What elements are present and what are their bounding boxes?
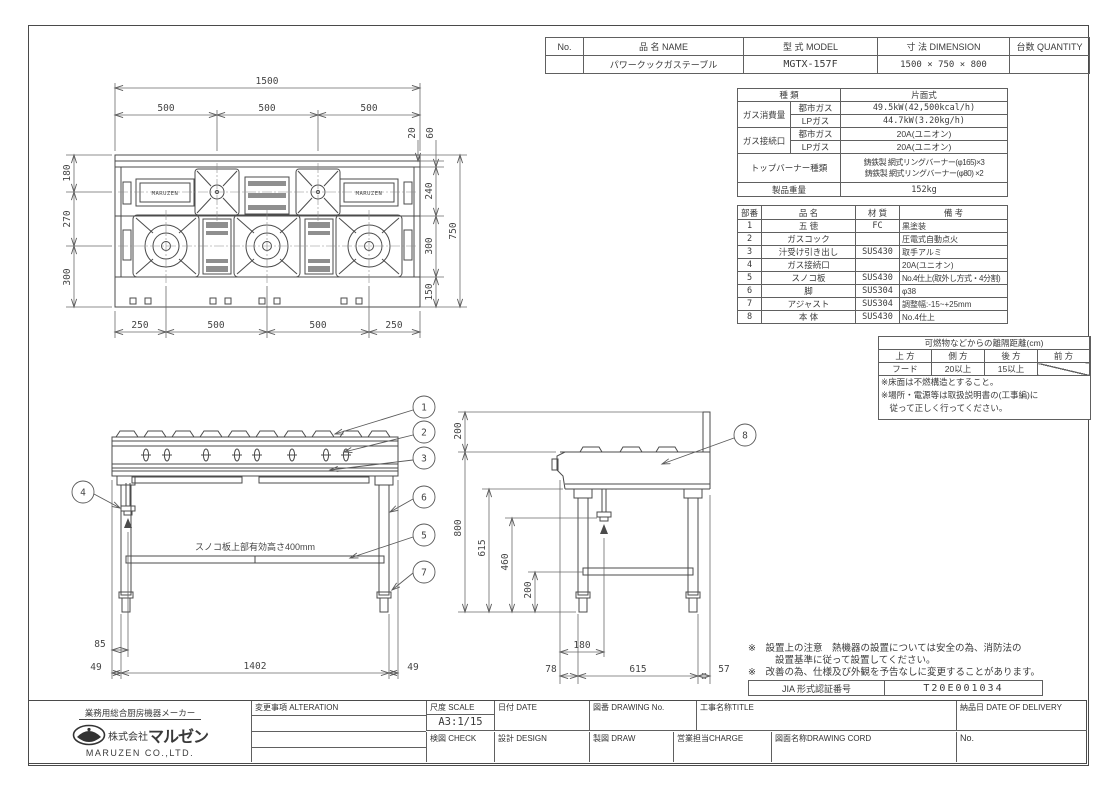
parts-cell: 圧電式自動点火 bbox=[900, 233, 1008, 246]
product-model: MGTX-157F bbox=[744, 56, 878, 74]
product-name: パワークックガステーブル bbox=[584, 56, 744, 74]
parts-row: 7 アジャスト SUS304 調整幅:-15~+25mm bbox=[738, 298, 1008, 311]
clearance-table: 可燃物などからの離隔距離(cm) 上 方 側 方 後 方 前 方 フード 20以… bbox=[878, 336, 1090, 376]
scale-value: A3:1/15 bbox=[427, 716, 494, 728]
spec-connection-city: 20A(ユニオン) bbox=[841, 128, 1008, 141]
scale-cell: 尺度 SCALE A3:1/15 bbox=[426, 701, 494, 731]
header-table: No. 品 名 NAME 型 式 MODEL 寸 法 DIMENSION 台数 … bbox=[545, 37, 1090, 74]
spec-weight-value: 152kg bbox=[841, 183, 1008, 197]
clearance-note-3: 従って正しく行ってください。 bbox=[879, 402, 1090, 415]
parts-cell bbox=[856, 259, 900, 272]
clearance-col-front: 前 方 bbox=[1038, 350, 1090, 363]
parts-cell: 1 bbox=[738, 220, 762, 233]
draw-cell: 製図 DRAW bbox=[589, 732, 673, 762]
spec-citygas-label: 都市ガス bbox=[791, 102, 841, 115]
parts-cell: 2 bbox=[738, 233, 762, 246]
no-label: No. bbox=[957, 732, 1087, 743]
parts-row: 8 本 体 SUS430 No.4仕上 bbox=[738, 311, 1008, 324]
charge-cell: 営業担当CHARGE bbox=[673, 732, 771, 762]
spec-citygas-label2: 都市ガス bbox=[791, 128, 841, 141]
parts-cell: アジャスト bbox=[762, 298, 856, 311]
parts-cell: 7 bbox=[738, 298, 762, 311]
parts-row: 2 ガスコック 圧電式自動点火 bbox=[738, 233, 1008, 246]
project-title-label: 工事名称TITLE bbox=[697, 701, 956, 713]
parts-col-name: 品 名 bbox=[762, 206, 856, 220]
parts-cell: SUS304 bbox=[856, 298, 900, 311]
header-col-dimension: 寸 法 DIMENSION bbox=[878, 38, 1010, 56]
parts-col-no: 部番 bbox=[738, 206, 762, 220]
parts-cell: 調整幅:-15~+25mm bbox=[900, 298, 1008, 311]
footnote-line-1b: 設置基準に従って設置してください。 bbox=[775, 655, 935, 667]
footnote-line-2: ※ 改善の為、仕様及び外観を予告なしに変更することがあります。 bbox=[748, 667, 1040, 679]
alteration-row-divider bbox=[252, 715, 426, 716]
clearance-row-label: フード bbox=[879, 363, 932, 376]
spec-table: 種 類 片面式 ガス消費量 都市ガス 49.5kW(42,500kcal/h) … bbox=[737, 88, 1008, 197]
parts-row: 6 脚 SUS304 φ38 bbox=[738, 285, 1008, 298]
design-label: 設計 DESIGN bbox=[495, 732, 589, 744]
drawing-no-cell: 図番 DRAWING No. bbox=[589, 701, 696, 731]
company-tagline: 業務用総合厨房機器メーカー bbox=[79, 708, 202, 720]
clearance-box: 可燃物などからの離隔距離(cm) 上 方 側 方 後 方 前 方 フード 20以… bbox=[878, 336, 1091, 420]
spec-burner-line1: 鋳鉄製 網式リングバーナー(φ165)×3 bbox=[843, 157, 1005, 168]
clearance-val-side: 20以上 bbox=[932, 363, 985, 376]
parts-cell: 脚 bbox=[762, 285, 856, 298]
delivery-label: 納品日 DATE OF DELIVERY bbox=[957, 701, 1087, 713]
spec-kind-value: 片面式 bbox=[841, 89, 1008, 102]
spec-consumption-city: 49.5kW(42,500kcal/h) bbox=[841, 102, 1008, 115]
jia-certification: JIA 形式認証番号 T20E001034 bbox=[748, 680, 1043, 696]
draw-label: 製図 DRAW bbox=[590, 732, 673, 744]
spec-lpgas-label2: LPガス bbox=[791, 141, 841, 154]
parts-col-material: 材 質 bbox=[856, 206, 900, 220]
parts-cell: SUS430 bbox=[856, 272, 900, 285]
charge-label: 営業担当CHARGE bbox=[674, 732, 771, 744]
jia-label: JIA 形式認証番号 bbox=[749, 681, 885, 696]
no-cell: No. bbox=[956, 732, 1087, 762]
parts-cell: ガス接続口 bbox=[762, 259, 856, 272]
drawing-name-label: 図面名称DRAWING CORD bbox=[772, 732, 956, 744]
parts-cell: 6 bbox=[738, 285, 762, 298]
parts-cell: 本 体 bbox=[762, 311, 856, 324]
alteration-row-divider bbox=[252, 731, 426, 732]
drawing-no-label: 図番 DRAWING No. bbox=[590, 701, 696, 713]
date-cell: 日付 DATE bbox=[494, 701, 589, 731]
clearance-note-1: ※床面は不燃構造とすること。 bbox=[879, 376, 1090, 389]
parts-cell: 黒塗装 bbox=[900, 220, 1008, 233]
parts-row: 3 汁受け引き出し SUS430 取手アルミ bbox=[738, 246, 1008, 259]
spec-burner-value: 鋳鉄製 網式リングバーナー(φ165)×3 鋳鉄製 網式リングバーナー(φ80)… bbox=[841, 154, 1008, 183]
parts-row: 4 ガス接続口 20A(ユニオン) bbox=[738, 259, 1008, 272]
company-name-jp: マルゼン bbox=[148, 723, 208, 747]
design-cell: 設計 DESIGN bbox=[494, 732, 589, 762]
clearance-val-front bbox=[1038, 363, 1090, 376]
header-cell-quantity bbox=[1010, 56, 1090, 74]
delivery-cell: 納品日 DATE OF DELIVERY bbox=[956, 701, 1087, 731]
parts-table: 部番 品 名 材 質 備 考 1 五 徳 FC 黒塗装 2 ガスコック 圧電式自… bbox=[737, 205, 1008, 324]
title-block: 業務用総合厨房機器メーカー 株式会社 マルゼン MARUZEN CO.,LTD.… bbox=[28, 700, 1087, 764]
company-name-en: MARUZEN CO.,LTD. bbox=[29, 748, 251, 758]
alteration-label: 変更事項 ALTERATION bbox=[252, 701, 426, 713]
parts-cell: SUS430 bbox=[856, 311, 900, 324]
footnote-line-1a: ※ 設置上の注意 熱機器の設置については安全の為、消防法の bbox=[748, 643, 1022, 655]
parts-cell: 取手アルミ bbox=[900, 246, 1008, 259]
parts-cell: SUS304 bbox=[856, 285, 900, 298]
parts-cell: スノコ板 bbox=[762, 272, 856, 285]
header-col-model: 型 式 MODEL bbox=[744, 38, 878, 56]
spec-weight-label: 製品重量 bbox=[738, 183, 841, 197]
spec-burner-line2: 鋳鉄製 網式リングバーナー(φ80) ×2 bbox=[843, 168, 1005, 179]
drawing-sheet: MARUZEN MARUZEN bbox=[0, 0, 1117, 789]
parts-cell: FC bbox=[856, 220, 900, 233]
company-cell: 業務用総合厨房機器メーカー 株式会社 マルゼン MARUZEN CO.,LTD. bbox=[29, 701, 251, 762]
alteration-row-divider bbox=[252, 747, 426, 748]
parts-cell bbox=[856, 233, 900, 246]
parts-row: 1 五 徳 FC 黒塗装 bbox=[738, 220, 1008, 233]
parts-cell: No.4仕上 bbox=[900, 311, 1008, 324]
product-dimension: 1500 × 750 × 800 bbox=[878, 56, 1010, 74]
clearance-title: 可燃物などからの離隔距離(cm) bbox=[879, 337, 1090, 350]
clearance-note-2: ※場所・電源等は取扱説明書の(工事編)に bbox=[879, 389, 1090, 402]
header-col-quantity: 台数 QUANTITY bbox=[1010, 38, 1090, 56]
clearance-col-back: 後 方 bbox=[985, 350, 1038, 363]
company-prefix: 株式会社 bbox=[108, 728, 148, 743]
date-label: 日付 DATE bbox=[495, 701, 589, 713]
project-title-cell: 工事名称TITLE bbox=[696, 701, 956, 731]
parts-cell: 20A(ユニオン) bbox=[900, 259, 1008, 272]
spec-burner-label: トップバーナー種類 bbox=[738, 154, 841, 183]
parts-row: 5 スノコ板 SUS430 No.4仕上(取外し方式・4分割) bbox=[738, 272, 1008, 285]
drawing-name-cell: 図面名称DRAWING CORD bbox=[771, 732, 956, 762]
parts-cell: 8 bbox=[738, 311, 762, 324]
spec-lpgas-label: LPガス bbox=[791, 115, 841, 128]
parts-cell: 4 bbox=[738, 259, 762, 272]
jia-value: T20E001034 bbox=[885, 681, 1043, 696]
check-cell: 検図 CHECK bbox=[426, 732, 494, 762]
spec-consumption-label: ガス消費量 bbox=[738, 102, 791, 128]
alteration-cell: 変更事項 ALTERATION bbox=[251, 701, 426, 762]
clearance-val-back: 15以上 bbox=[985, 363, 1038, 376]
spec-connection-label: ガス接続口 bbox=[738, 128, 791, 154]
check-label: 検図 CHECK bbox=[427, 732, 494, 744]
parts-cell: 3 bbox=[738, 246, 762, 259]
clearance-col-top: 上 方 bbox=[879, 350, 932, 363]
parts-cell: 汁受け引き出し bbox=[762, 246, 856, 259]
parts-cell: 5 bbox=[738, 272, 762, 285]
parts-cell: φ38 bbox=[900, 285, 1008, 298]
header-col-name: 品 名 NAME bbox=[584, 38, 744, 56]
spec-connection-lp: 20A(ユニオン) bbox=[841, 141, 1008, 154]
header-col-no: No. bbox=[546, 38, 584, 56]
parts-col-remarks: 備 考 bbox=[900, 206, 1008, 220]
parts-cell: No.4仕上(取外し方式・4分割) bbox=[900, 272, 1008, 285]
parts-cell: SUS430 bbox=[856, 246, 900, 259]
maruzen-logo-icon bbox=[72, 724, 106, 746]
spec-kind-label: 種 類 bbox=[738, 89, 841, 102]
header-cell-no bbox=[546, 56, 584, 74]
parts-cell: 五 徳 bbox=[762, 220, 856, 233]
parts-cell: ガスコック bbox=[762, 233, 856, 246]
clearance-col-side: 側 方 bbox=[932, 350, 985, 363]
spec-consumption-lp: 44.7kW(3.20kg/h) bbox=[841, 115, 1008, 128]
scale-label: 尺度 SCALE bbox=[427, 701, 494, 715]
